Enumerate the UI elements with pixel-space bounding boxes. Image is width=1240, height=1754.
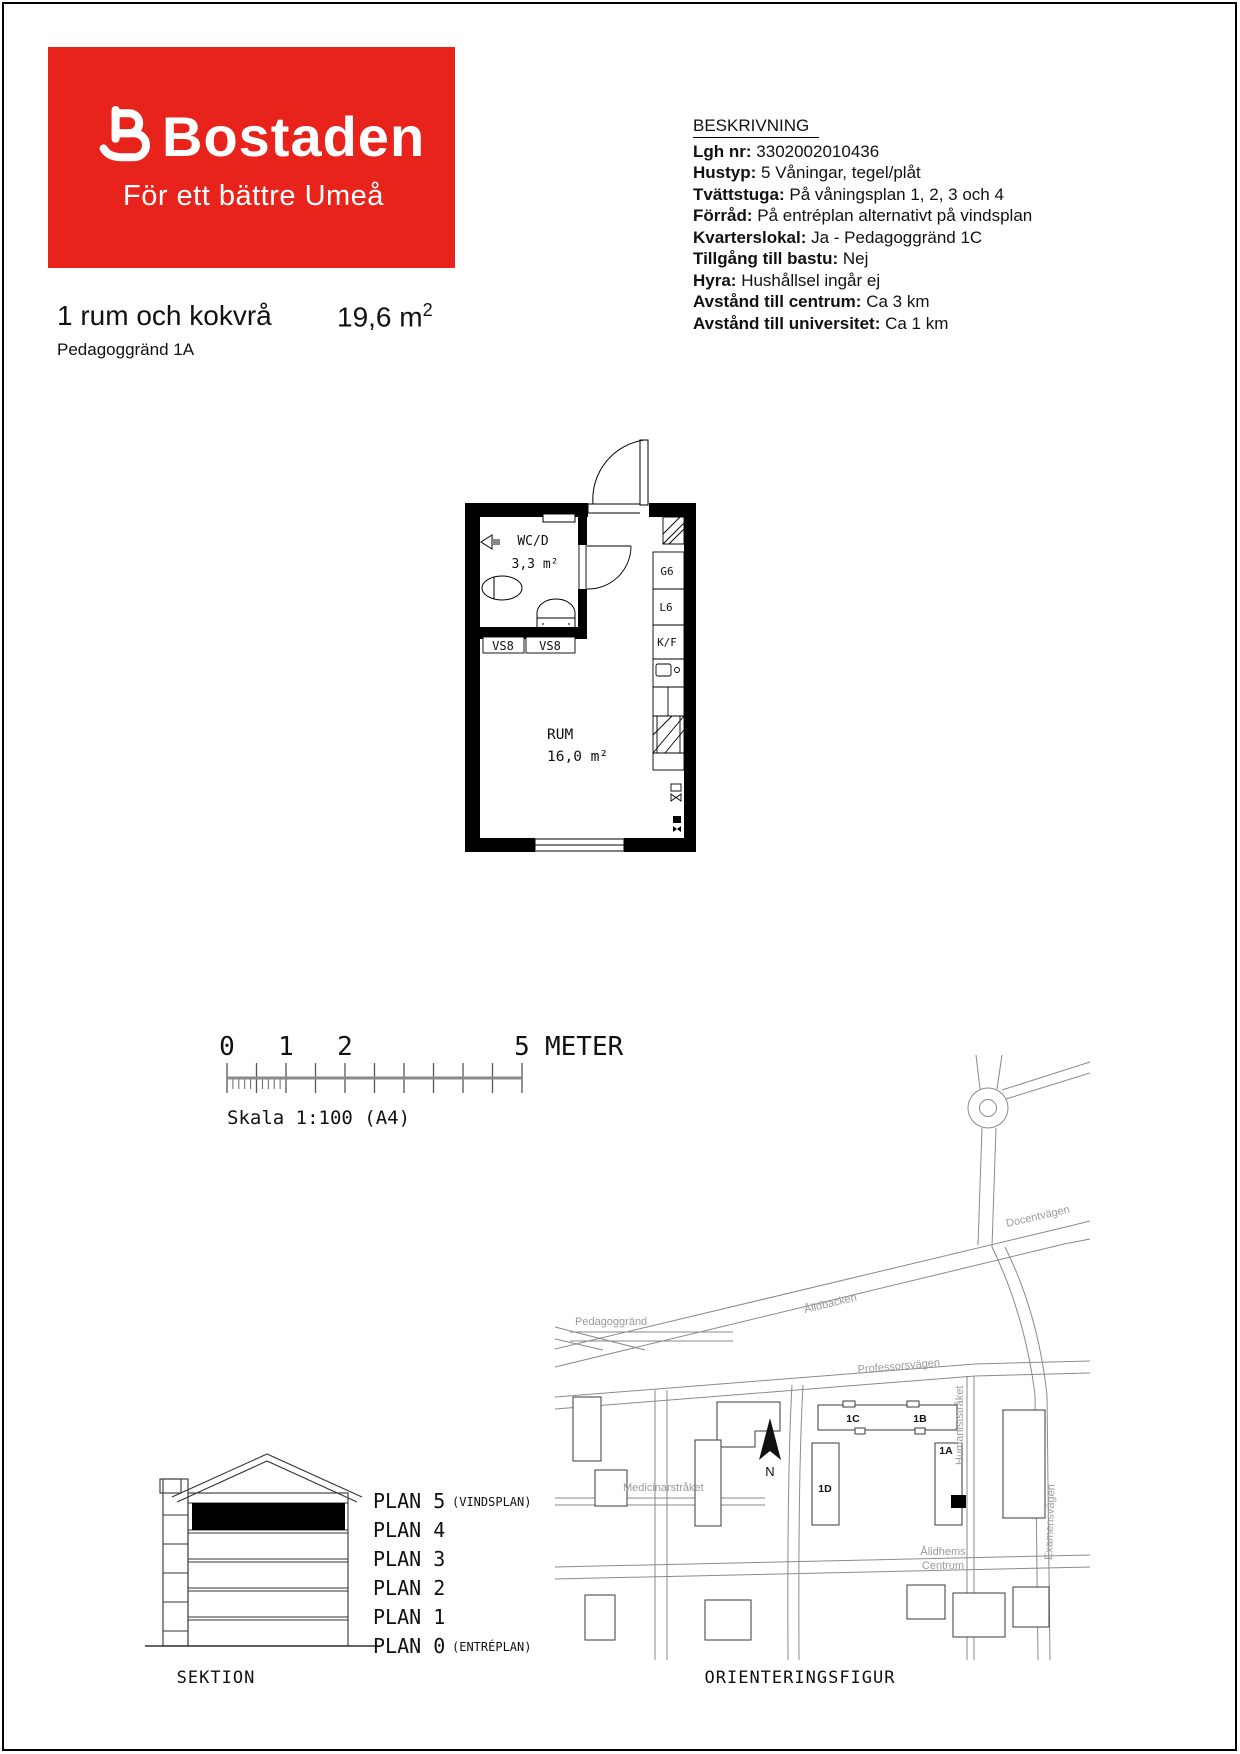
plan-5-label: PLAN 5 xyxy=(373,1489,445,1513)
wc-shelf xyxy=(543,514,575,522)
wc-label: WC/D xyxy=(517,534,548,549)
wc-area-label: 3,3 m² xyxy=(512,557,559,572)
building-1c-1b xyxy=(818,1405,957,1430)
map-caption: ORIENTERINGSFIGUR xyxy=(700,1668,900,1688)
room-area-label: 16,0 m² xyxy=(547,749,608,765)
description-heading: BESKRIVNING xyxy=(693,115,819,138)
description-row: Lgh nr: 3302002010436 xyxy=(693,141,1032,163)
building-label-1b: 1B xyxy=(913,1413,927,1425)
plan-labels: PLAN 5 (VINDSPLAN) PLAN 4 PLAN 3 PLAN 2 … xyxy=(373,1489,531,1658)
scale-0: 0 xyxy=(219,1032,235,1062)
building-label-1a: 1A xyxy=(939,1445,953,1457)
building-outline xyxy=(145,1454,375,1646)
apartment-area: 19,6 m2 xyxy=(337,300,433,333)
fridge-kf-label: K/F xyxy=(657,636,677,649)
area-superscript: 2 xyxy=(423,300,433,320)
vent-marker-small xyxy=(673,826,681,832)
scale-1: 1 xyxy=(278,1032,294,1062)
walls xyxy=(465,503,696,852)
street-medicinarstraket: Medicinarstråket xyxy=(623,1482,704,1494)
plan-0-suffix: (ENTRÉPLAN) xyxy=(452,1639,531,1654)
vs8-label-2: VS8 xyxy=(539,639,561,653)
vs8-label-1: VS8 xyxy=(492,639,514,653)
bostaden-b-mark-icon xyxy=(98,102,162,171)
brand-name: Bostaden xyxy=(162,109,425,165)
description-block: BESKRIVNING Lgh nr: 3302002010436 Hustyp… xyxy=(693,115,1032,334)
street-humaniststraket: Humaniststråket xyxy=(954,1386,966,1465)
entrance-door-swing xyxy=(593,440,644,504)
section-drawing: PLAN 5 (VINDSPLAN) PLAN 4 PLAN 3 PLAN 2 … xyxy=(130,1440,550,1670)
section-caption: SEKTION xyxy=(146,1668,286,1688)
area-value: 19,6 m xyxy=(337,301,423,332)
street-professorsvagen: Professorsvägen xyxy=(857,1357,940,1376)
roads xyxy=(555,1055,1090,1660)
street-examensvagen: Examensvägen xyxy=(1043,1484,1058,1560)
room-label: RUM xyxy=(547,727,573,743)
description-row: Tvättstuga: På våningsplan 1, 2, 3 och 4 xyxy=(693,184,1032,206)
vent-marker xyxy=(673,816,681,823)
brand-tagline: För ett bättre Umeå xyxy=(123,180,384,213)
wc-door xyxy=(579,545,631,589)
description-row: Förråd: På entréplan alternativt på vind… xyxy=(693,205,1032,227)
apartment-fact-sheet: Bostaden För ett bättre Umeå 1 rum och k… xyxy=(0,0,1240,1754)
description-row: Hustyp: 5 Våningar, tegel/plåt xyxy=(693,162,1032,184)
orientation-map: Ålidbacken Professorsvägen Docentvägen P… xyxy=(555,1055,1090,1665)
apartment-title: 1 rum och kokvrå xyxy=(57,300,272,332)
apartment-location-marker xyxy=(951,1495,966,1508)
street-alidbacken: Ålidbacken xyxy=(803,1291,858,1316)
description-row: Avstånd till universitet: Ca 1 km xyxy=(693,313,1032,335)
plan-3-label: PLAN 3 xyxy=(373,1547,445,1571)
entrance-threshold xyxy=(588,504,640,513)
window xyxy=(535,839,624,851)
area-label-line2: Centrum xyxy=(922,1560,964,1572)
area-label-line1: Ålidhems xyxy=(920,1545,966,1558)
plan-4-label: PLAN 4 xyxy=(373,1518,445,1542)
street-docentvagen: Docentvägen xyxy=(1005,1204,1071,1230)
coat-rack-hatch xyxy=(663,517,684,544)
floorplan: WC/D 3,3 m² VS8 VS8 RUM 16,0 m² G6 L6 K/… xyxy=(400,388,700,868)
street-pedagoggrand: Pedagoggränd xyxy=(575,1316,647,1328)
plan-1-label: PLAN 1 xyxy=(373,1605,445,1629)
cabinet-l6-label: L6 xyxy=(659,601,672,614)
compass-n-label: N xyxy=(765,1464,774,1479)
scale-2: 2 xyxy=(337,1032,353,1062)
plan-2-label: PLAN 2 xyxy=(373,1576,445,1600)
scale-caption: Skala 1:100 (A4) xyxy=(227,1107,410,1129)
description-row: Tillgång till bastu: Nej xyxy=(693,248,1032,270)
building-label-1c: 1C xyxy=(846,1413,860,1425)
tap-icon xyxy=(675,668,680,673)
apartment-address: Pedagoggränd 1A xyxy=(57,340,194,360)
vent-icon xyxy=(481,535,500,549)
roundabout xyxy=(968,1088,1008,1128)
sink-icon xyxy=(656,664,671,676)
entrance-door-leaf xyxy=(640,440,648,505)
washbasin-icon xyxy=(537,599,575,630)
description-row: Hyra: Hushållsel ingår ej xyxy=(693,270,1032,292)
description-row: Kvarterslokal: Ja - Pedagoggränd 1C xyxy=(693,227,1032,249)
plan-0-label: PLAN 0 xyxy=(373,1634,445,1658)
plan-5-suffix: (VINDSPLAN) xyxy=(452,1495,531,1509)
scale-5: 5 xyxy=(514,1032,530,1062)
bostaden-logo-box: Bostaden För ett bättre Umeå xyxy=(48,47,455,268)
kitchen-units xyxy=(653,517,684,801)
toilet-icon xyxy=(482,576,522,600)
highlighted-floor xyxy=(192,1503,345,1530)
building-label-1d: 1D xyxy=(818,1483,832,1495)
map-buildings xyxy=(573,1397,1049,1640)
description-row: Avstånd till centrum: Ca 3 km xyxy=(693,291,1032,313)
cabinet-g6-label: G6 xyxy=(660,565,673,578)
